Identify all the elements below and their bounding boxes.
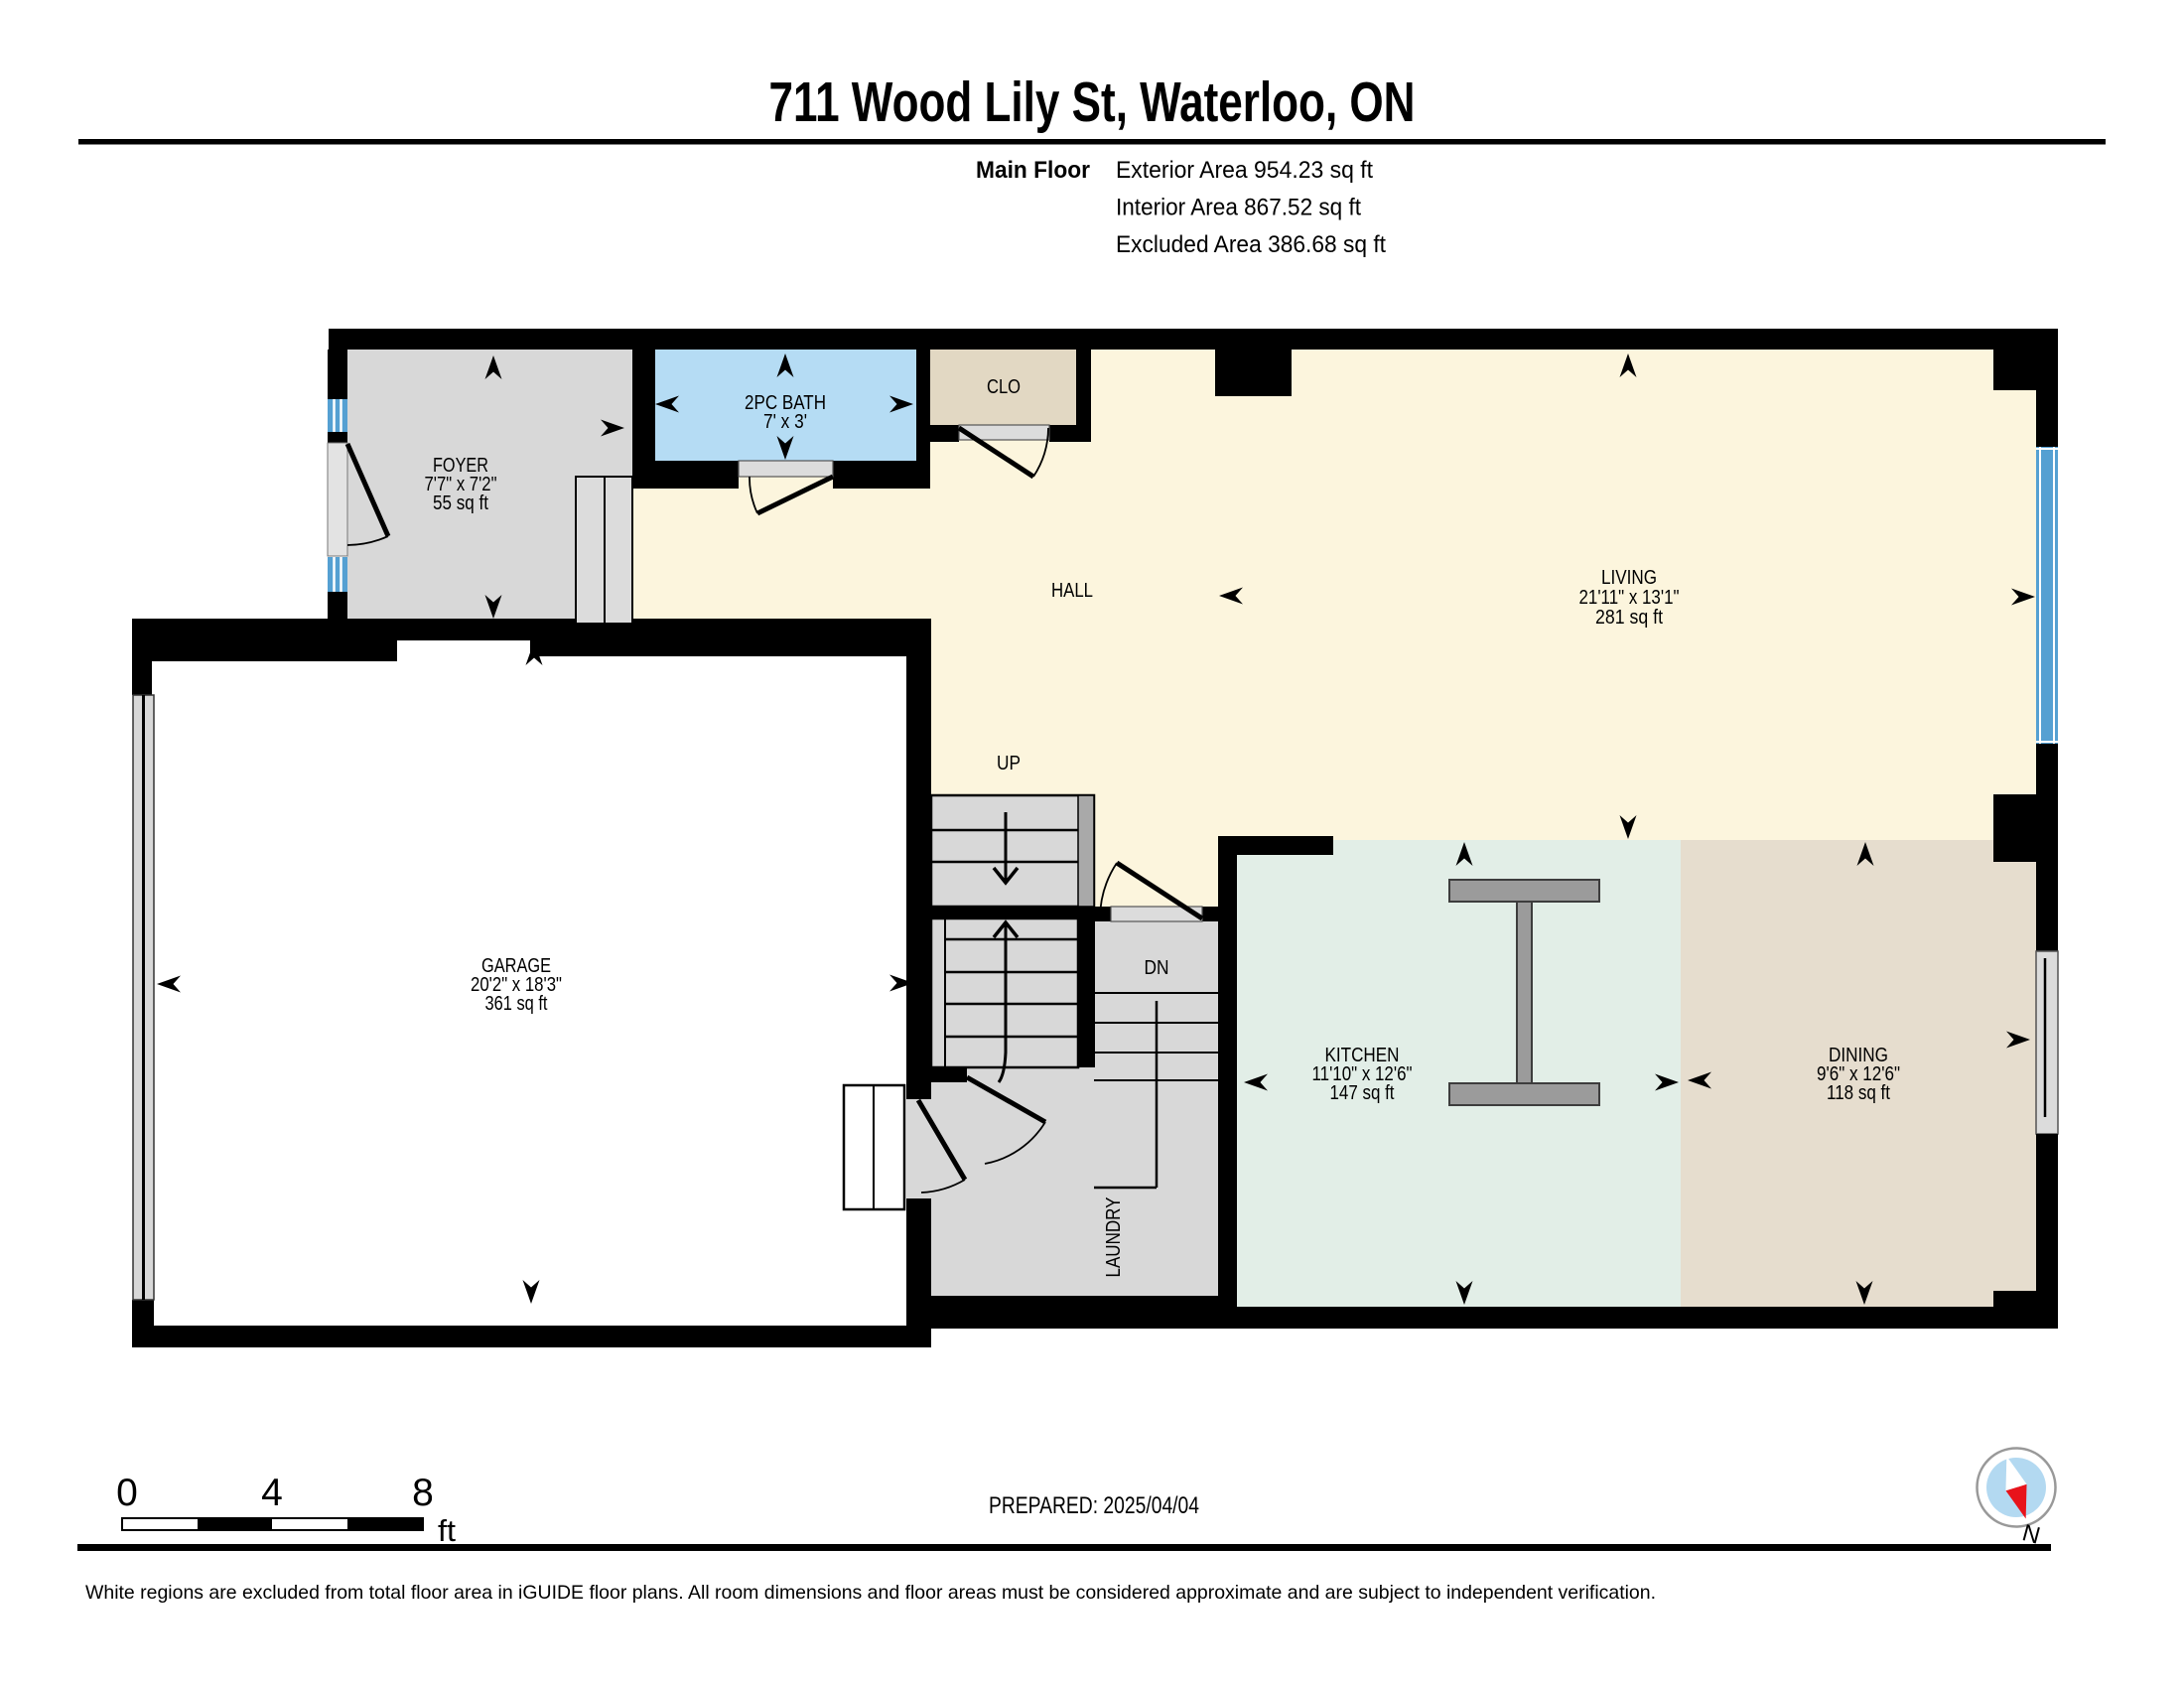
svg-text:CLO: CLO [987,376,1021,398]
svg-text:PREPARED: 2025/04/04: PREPARED: 2025/04/04 [989,1492,1199,1519]
svg-text:HALL: HALL [1051,580,1093,602]
svg-text:147 sq ft: 147 sq ft [1330,1082,1395,1104]
svg-text:4: 4 [261,1472,283,1514]
svg-text:361 sq ft: 361 sq ft [485,993,548,1015]
svg-text:711 Wood Lily St, Waterloo, ON: 711 Wood Lily St, Waterloo, ON [769,70,1416,134]
svg-text:LIVING: LIVING [1601,567,1657,589]
svg-text:Exterior Area 954.23 sq ft: Exterior Area 954.23 sq ft [1116,157,1373,184]
svg-text:55 sq ft: 55 sq ft [433,492,488,514]
svg-text:21'11" x 13'1": 21'11" x 13'1" [1579,587,1680,609]
svg-text:0: 0 [116,1472,138,1514]
svg-text:281 sq ft: 281 sq ft [1595,607,1663,629]
svg-text:8: 8 [412,1472,434,1514]
svg-text:White regions are excluded fro: White regions are excluded from total fl… [85,1582,1656,1604]
svg-text:ft: ft [438,1513,456,1548]
svg-text:UP: UP [997,753,1021,774]
svg-text:7' x 3': 7' x 3' [763,411,807,433]
svg-text:Interior Area 867.52 sq ft: Interior Area 867.52 sq ft [1116,195,1361,221]
svg-text:DN: DN [1145,957,1169,979]
svg-text:118 sq ft: 118 sq ft [1827,1082,1890,1104]
svg-text:Main Floor: Main Floor [976,157,1090,184]
svg-text:Excluded Area 386.68 sq ft: Excluded Area 386.68 sq ft [1116,231,1386,258]
svg-text:LAUNDRY: LAUNDRY [1103,1197,1125,1278]
